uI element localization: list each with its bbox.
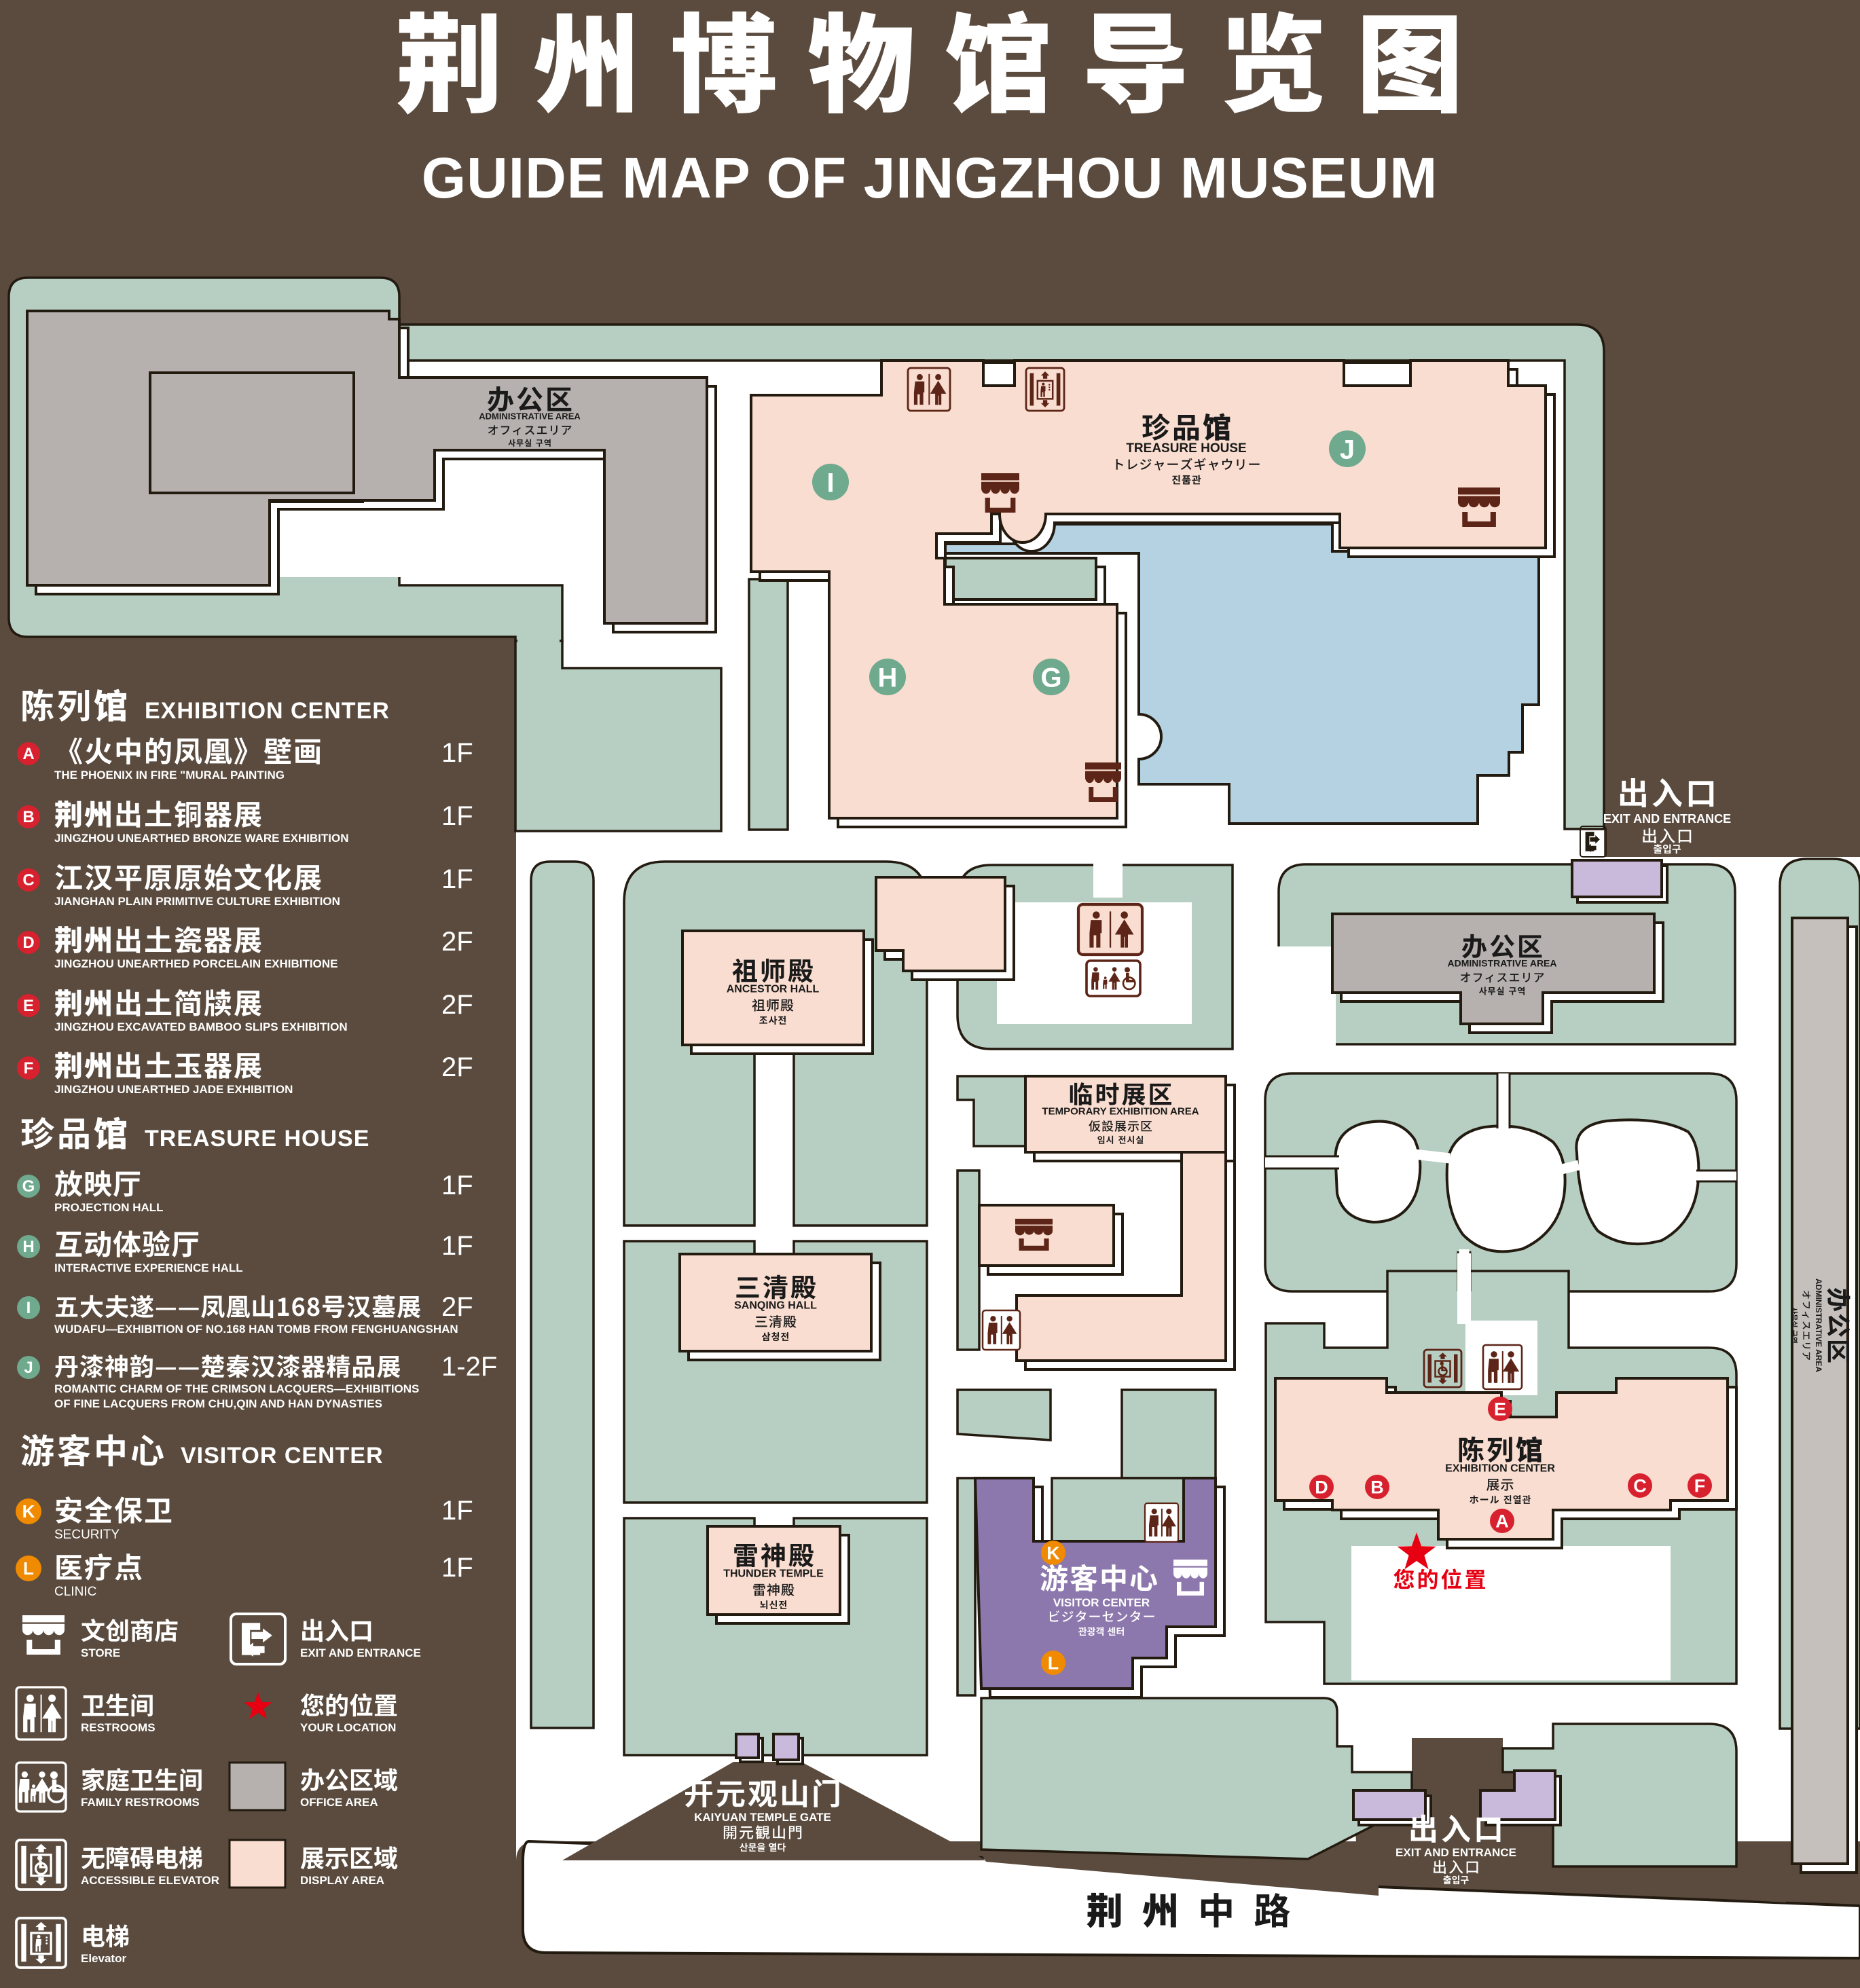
svg-text:JINGZHOU UNEARTHED PORCELAIN E: JINGZHOU UNEARTHED PORCELAIN EXHIBITIONE: [54, 957, 338, 970]
svg-text:SANQING HALL: SANQING HALL: [734, 1300, 817, 1312]
svg-text:2F: 2F: [441, 1052, 473, 1082]
svg-text:C: C: [22, 871, 34, 889]
svg-text:PROJECTION HALL: PROJECTION HALL: [54, 1201, 164, 1214]
svg-text:INTERACTIVE EXPERIENCE HALL: INTERACTIVE EXPERIENCE HALL: [54, 1262, 243, 1274]
svg-text:A: A: [22, 745, 34, 763]
svg-text:THE PHOENIX IN FIRE "MURAL PAI: THE PHOENIX IN FIRE "MURAL PAINTING: [54, 769, 285, 781]
svg-text:L: L: [1048, 1653, 1059, 1674]
svg-text:ROMANTIC CHARM OF THE CRIMSON: ROMANTIC CHARM OF THE CRIMSON LACQUERS—E…: [54, 1382, 419, 1395]
svg-text:1-2F: 1-2F: [441, 1352, 497, 1382]
svg-text:B: B: [22, 808, 34, 826]
svg-text:FAMILY RESTROOMS: FAMILY RESTROOMS: [81, 1796, 200, 1809]
svg-text:THUNDER TEMPLE: THUNDER TEMPLE: [723, 1568, 824, 1580]
svg-text:JINGZHOU EXCAVATED BAMBOO SLIP: JINGZHOU EXCAVATED BAMBOO SLIPS EXHIBITI…: [54, 1020, 348, 1033]
svg-text:1F: 1F: [441, 864, 473, 894]
svg-text:2F: 2F: [441, 1292, 473, 1322]
svg-text:G: G: [22, 1177, 35, 1196]
svg-text:B: B: [1370, 1477, 1384, 1498]
svg-text:EXIT AND ENTRANCE: EXIT AND ENTRANCE: [300, 1646, 421, 1659]
svg-text:C: C: [1633, 1476, 1647, 1496]
svg-text:1F: 1F: [441, 1496, 473, 1526]
svg-text:H: H: [878, 663, 898, 693]
svg-text:K: K: [1046, 1543, 1060, 1564]
svg-text:OF FINE LACQUERS FROM CHU,QIN: OF FINE LACQUERS FROM CHU,QIN AND HAN DY…: [54, 1397, 382, 1410]
svg-text:J: J: [24, 1359, 33, 1377]
svg-text:1F: 1F: [441, 1231, 473, 1261]
svg-text:E: E: [23, 997, 34, 1015]
svg-text:GUIDE MAP OF JINGZHOU MUSEUM: GUIDE MAP OF JINGZHOU MUSEUM: [422, 146, 1438, 210]
svg-text:1F: 1F: [441, 1553, 473, 1583]
svg-text:2F: 2F: [441, 990, 473, 1020]
svg-text:EXIT AND ENTRANCE: EXIT AND ENTRANCE: [1396, 1846, 1516, 1859]
svg-text:I: I: [26, 1299, 31, 1317]
svg-text:TREASURE HOUSE: TREASURE HOUSE: [145, 1126, 369, 1152]
svg-text:EXIT AND ENTRANCE: EXIT AND ENTRANCE: [1603, 812, 1731, 826]
svg-text:ADMINISTRATIVE AREA: ADMINISTRATIVE AREA: [1814, 1278, 1823, 1372]
svg-text:CLINIC: CLINIC: [54, 1585, 96, 1599]
svg-text:JINGZHOU UNEARTHED BRONZE WARE: JINGZHOU UNEARTHED BRONZE WARE EXHIBITIO…: [54, 832, 349, 845]
svg-text:DISPLAY AREA: DISPLAY AREA: [300, 1874, 384, 1887]
svg-text:YOUR LOCATION: YOUR LOCATION: [300, 1721, 396, 1734]
svg-text:ACCESSIBLE ELEVATOR: ACCESSIBLE ELEVATOR: [81, 1874, 219, 1887]
svg-text:RESTROOMS: RESTROOMS: [81, 1721, 156, 1734]
svg-text:STORE: STORE: [81, 1646, 120, 1659]
svg-text:E: E: [1494, 1399, 1506, 1420]
svg-text:OFFICE AREA: OFFICE AREA: [300, 1796, 378, 1809]
svg-text:EXHIBITION CENTER: EXHIBITION CENTER: [145, 698, 390, 724]
svg-text:WUDAFU—EXHIBITION OF NO.168 HA: WUDAFU—EXHIBITION OF NO.168 HAN TOMB FRO…: [54, 1323, 458, 1336]
svg-text:Elevator: Elevator: [81, 1952, 126, 1965]
svg-text:G: G: [1040, 663, 1061, 693]
svg-text:1F: 1F: [441, 1171, 473, 1200]
svg-text:F: F: [24, 1059, 34, 1078]
svg-text:EXHIBITION CENTER: EXHIBITION CENTER: [1445, 1463, 1555, 1475]
svg-text:VISITOR CENTER: VISITOR CENTER: [1053, 1596, 1150, 1609]
svg-text:TREASURE HOUSE: TREASURE HOUSE: [1126, 441, 1246, 456]
svg-text:A: A: [1495, 1511, 1509, 1532]
svg-text:ANCESTOR HALL: ANCESTOR HALL: [727, 984, 820, 995]
svg-text:1F: 1F: [441, 801, 473, 831]
svg-text:ADMINISTRATIVE AREA: ADMINISTRATIVE AREA: [479, 411, 581, 421]
svg-text:ADMINISTRATIVE AREA: ADMINISTRATIVE AREA: [1448, 957, 1557, 968]
svg-text:KAIYUAN TEMPLE GATE: KAIYUAN TEMPLE GATE: [694, 1811, 831, 1824]
svg-text:TEMPORARY EXHIBITION AREA: TEMPORARY EXHIBITION AREA: [1042, 1106, 1199, 1118]
svg-text:D: D: [22, 934, 34, 952]
svg-text:VISITOR CENTER: VISITOR CENTER: [181, 1443, 384, 1469]
svg-text:H: H: [22, 1238, 34, 1256]
svg-text:J: J: [1340, 435, 1355, 464]
svg-text:D: D: [1315, 1477, 1328, 1498]
svg-text:1F: 1F: [441, 738, 473, 768]
svg-text:I: I: [826, 468, 834, 498]
svg-text:2F: 2F: [441, 927, 473, 957]
svg-text:L: L: [23, 1558, 34, 1579]
svg-text:JINGZHOU UNEARTHED JADE EXHIBI: JINGZHOU UNEARTHED JADE EXHIBITION: [54, 1083, 293, 1096]
svg-text:SECURITY: SECURITY: [54, 1528, 120, 1542]
svg-text:F: F: [1694, 1476, 1706, 1496]
svg-text:K: K: [22, 1501, 35, 1522]
svg-text:JIANGHAN PLAIN PRIMITIVE CULTU: JIANGHAN PLAIN PRIMITIVE CULTURE EXHIBIT…: [54, 895, 340, 908]
